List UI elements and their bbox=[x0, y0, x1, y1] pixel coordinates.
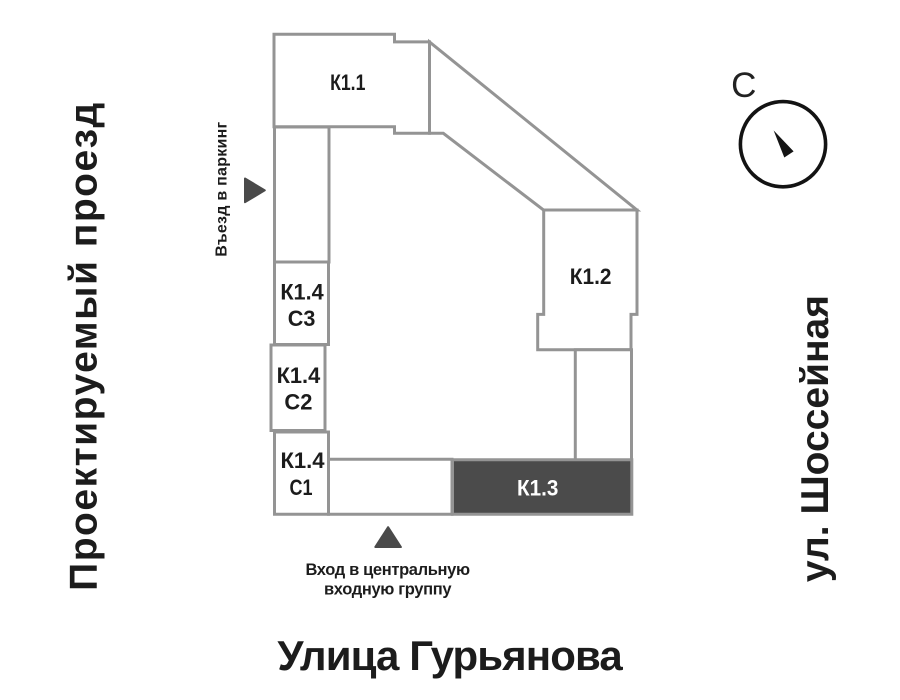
svg-text:Улица Гурьянова: Улица Гурьянова bbox=[277, 632, 623, 679]
svg-text:ул. Шоссейная: ул. Шоссейная bbox=[794, 295, 837, 582]
svg-text:К1.1: К1.1 bbox=[330, 70, 365, 95]
svg-text:Въезд в паркинг: Въезд в паркинг bbox=[214, 122, 231, 257]
svg-text:С2: С2 bbox=[284, 390, 312, 415]
svg-text:К1.4: К1.4 bbox=[280, 280, 324, 305]
svg-text:С1: С1 bbox=[290, 475, 313, 500]
svg-text:Проектируемый проезд: Проектируемый проезд bbox=[63, 101, 106, 591]
svg-text:К1.4: К1.4 bbox=[277, 363, 321, 388]
svg-text:К1.3: К1.3 bbox=[517, 475, 558, 500]
svg-text:С3: С3 bbox=[288, 306, 316, 331]
svg-text:К1.2: К1.2 bbox=[570, 264, 612, 289]
svg-text:С: С bbox=[731, 66, 756, 105]
svg-text:входную группу: входную группу bbox=[324, 581, 452, 599]
svg-text:Вход в центральную: Вход в центральную bbox=[305, 561, 470, 579]
svg-text:К1.4: К1.4 bbox=[280, 448, 325, 473]
